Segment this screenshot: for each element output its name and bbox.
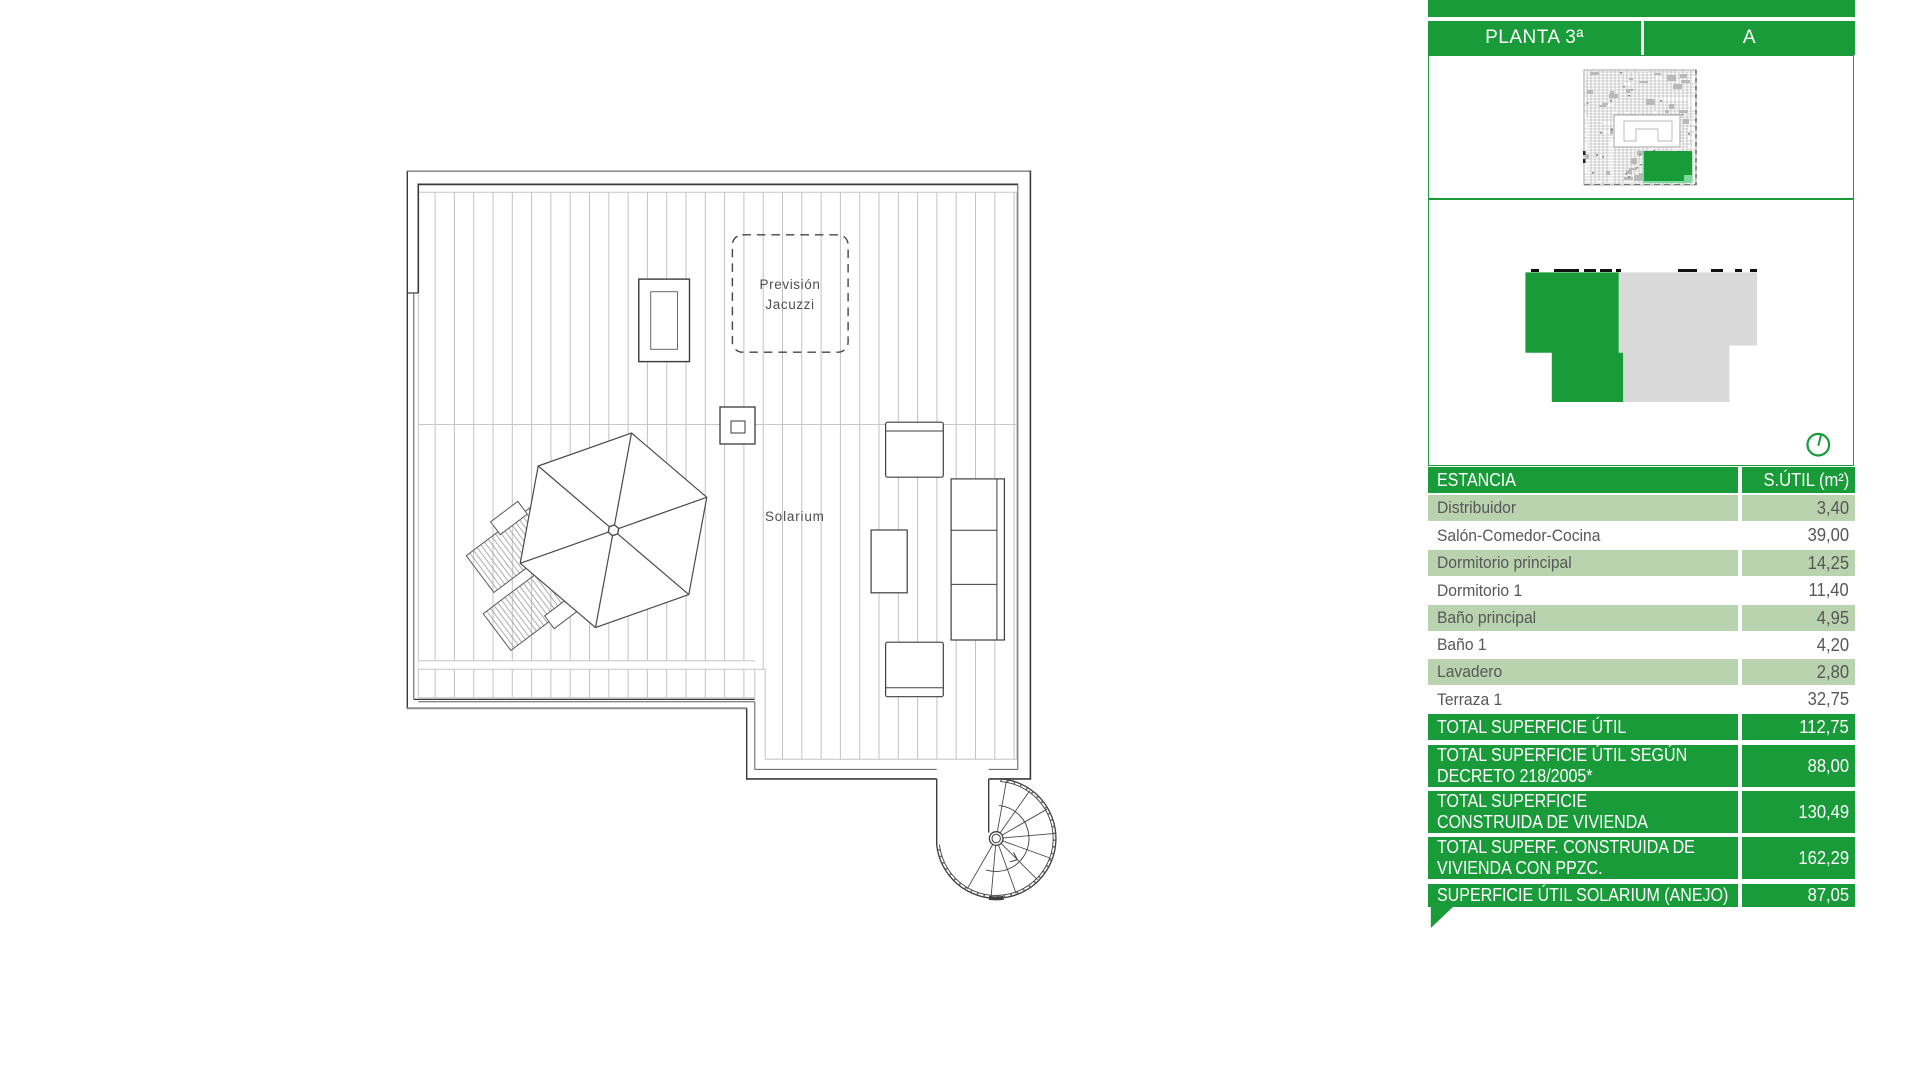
svg-text:Previsión: Previsión [760,277,821,292]
svg-text:Solarium: Solarium [765,509,825,524]
svg-text:Jacuzzi: Jacuzzi [765,297,814,312]
